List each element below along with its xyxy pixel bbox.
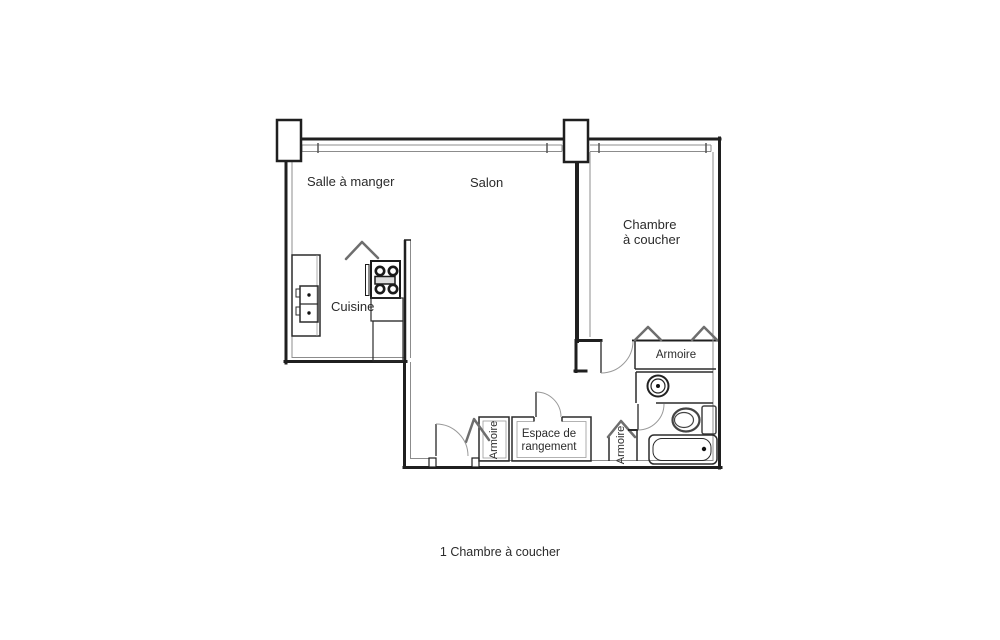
bathroom-sink-icon bbox=[648, 376, 669, 397]
plan-caption: 1 Chambre à coucher bbox=[399, 545, 601, 559]
interior-walls bbox=[575, 161, 719, 372]
kitchen-lower-counters bbox=[371, 298, 403, 361]
window-band-bedroom bbox=[590, 145, 711, 152]
label-kitchen: Cuisine bbox=[331, 299, 374, 314]
kitchen-sink-icon bbox=[296, 286, 318, 322]
entry-jambs bbox=[429, 458, 479, 467]
stove-icon bbox=[366, 261, 401, 298]
bedroom-door bbox=[601, 341, 633, 373]
kitchen-wall-right bbox=[404, 240, 411, 362]
bedroom-closet-chevron-icons bbox=[635, 327, 717, 340]
label-bedroom: Chambre à coucher bbox=[623, 217, 680, 247]
label-bedroom-closet: Armoire bbox=[649, 349, 703, 362]
label-storage-room: Espace de rangement bbox=[509, 428, 589, 454]
bathroom-door bbox=[638, 404, 664, 430]
structural-pillars bbox=[277, 120, 588, 162]
label-entry-closet: Armoire bbox=[487, 400, 501, 480]
floor-plan-drawing bbox=[0, 0, 1000, 640]
bathtub-icon bbox=[649, 435, 717, 464]
label-dining-room: Salle à manger bbox=[307, 174, 394, 189]
toilet-icon bbox=[673, 406, 717, 434]
kitchen-bifold-chevron-icon bbox=[346, 242, 378, 259]
pillar-middle bbox=[564, 120, 588, 162]
entry-closet-chevron-icon bbox=[466, 419, 489, 442]
storage-door bbox=[536, 392, 561, 417]
window-band-living bbox=[302, 145, 562, 152]
pillar-left bbox=[277, 120, 301, 161]
label-hall-closet: Armoire bbox=[614, 405, 628, 485]
floor-plan: Salle à manger Salon Chambre à coucher C… bbox=[0, 0, 1000, 640]
entry-door bbox=[436, 424, 468, 456]
label-living-room: Salon bbox=[470, 175, 503, 190]
